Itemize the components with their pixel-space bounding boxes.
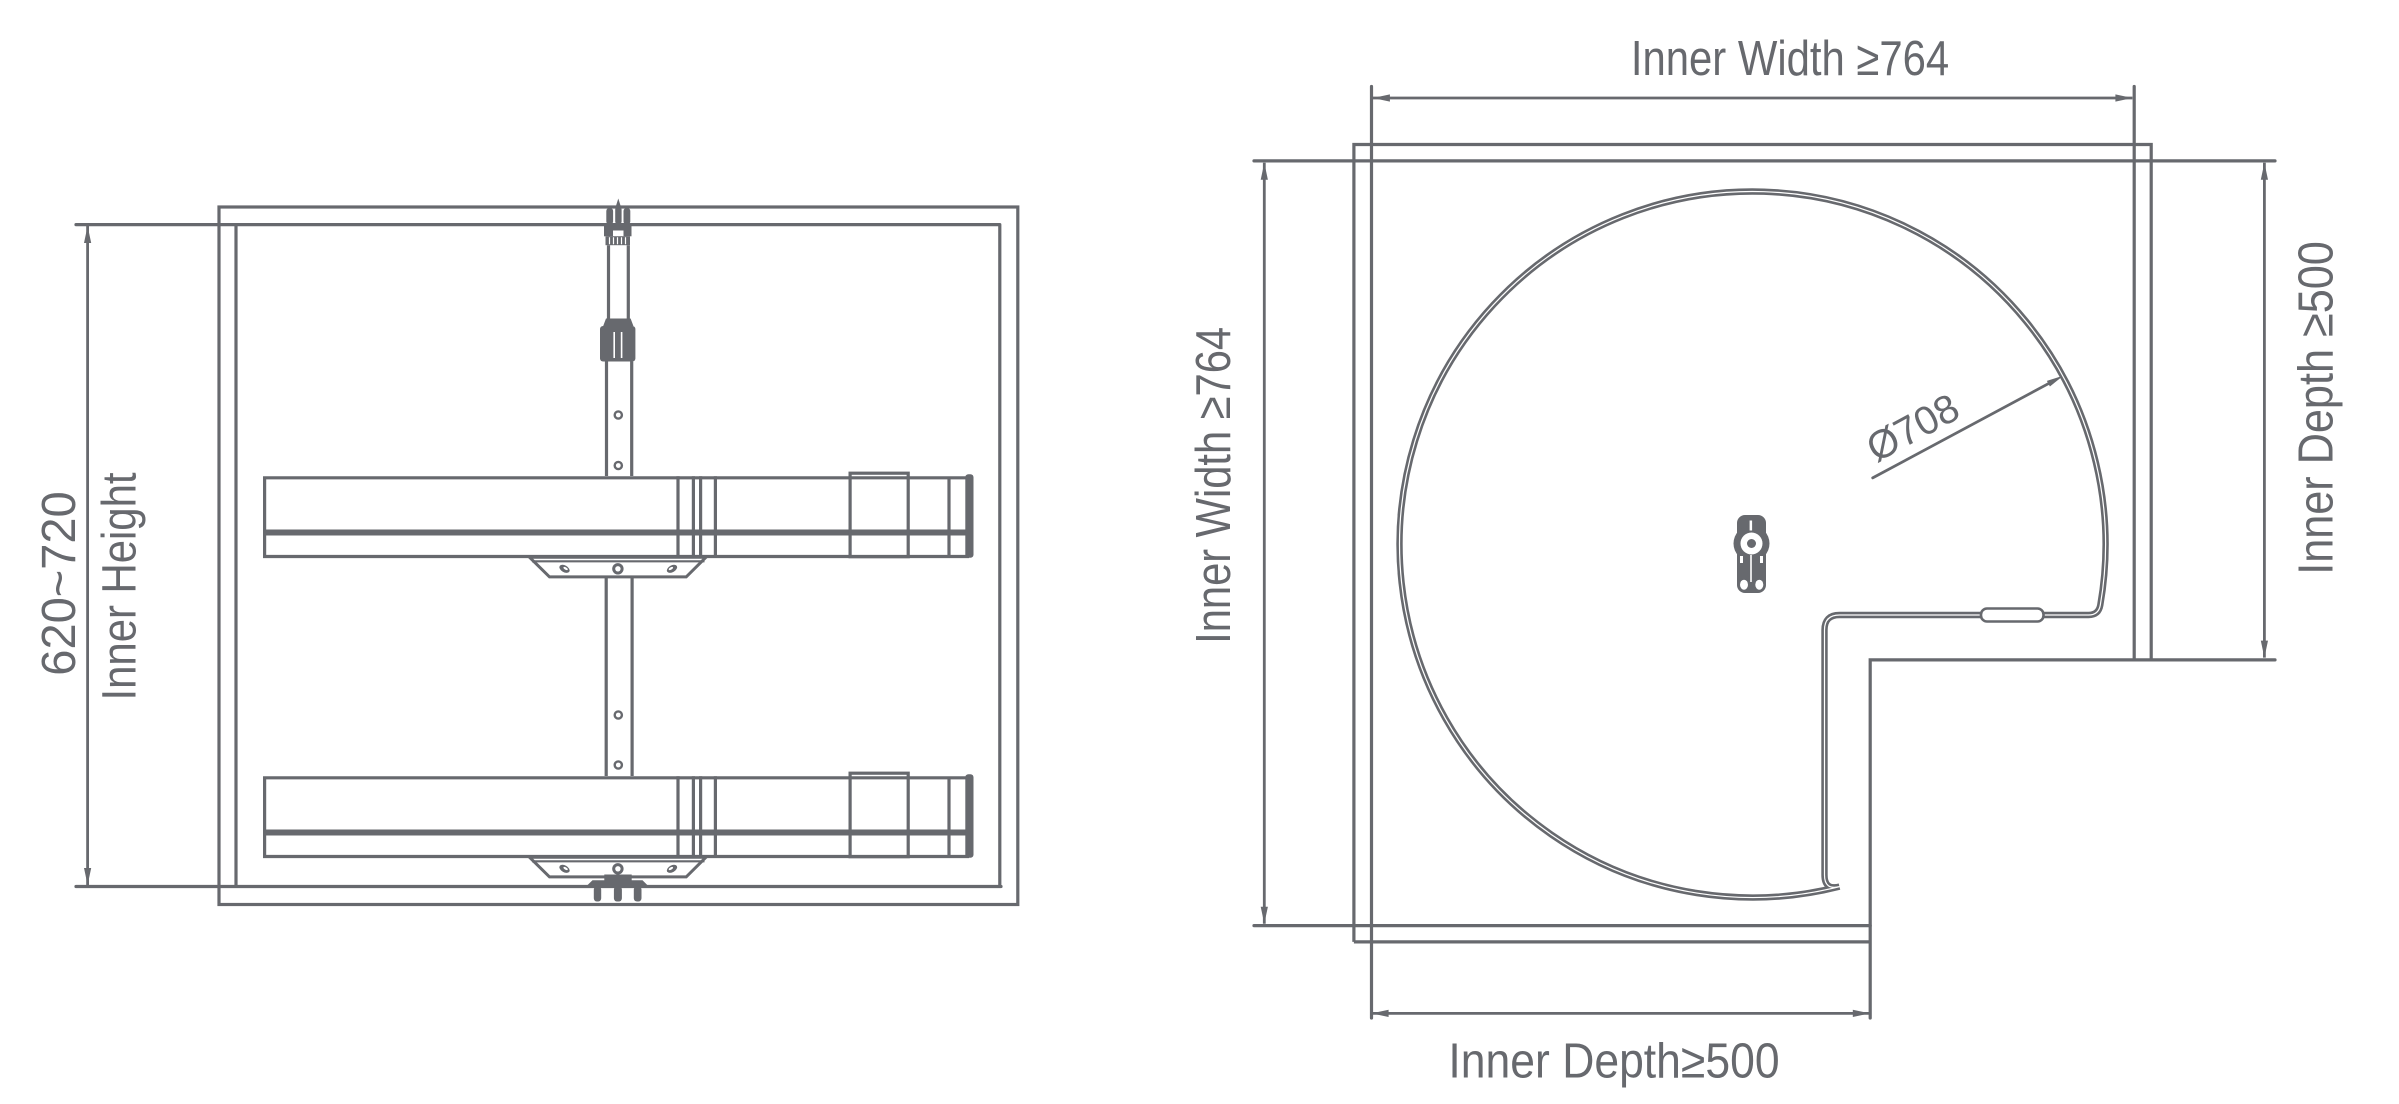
svg-text:Inner Depth ≥500: Inner Depth ≥500 [2288, 241, 2343, 575]
svg-text:Ø708: Ø708 [1860, 386, 1967, 471]
svg-text:Inner Width ≥764: Inner Width ≥764 [1186, 327, 1241, 644]
svg-text:Inner Height: Inner Height [92, 472, 146, 700]
svg-text:Inner Depth≥500: Inner Depth≥500 [1448, 1034, 1779, 1088]
svg-text:620~720: 620~720 [33, 491, 87, 675]
svg-text:Inner Width ≥764: Inner Width ≥764 [1631, 31, 1949, 86]
